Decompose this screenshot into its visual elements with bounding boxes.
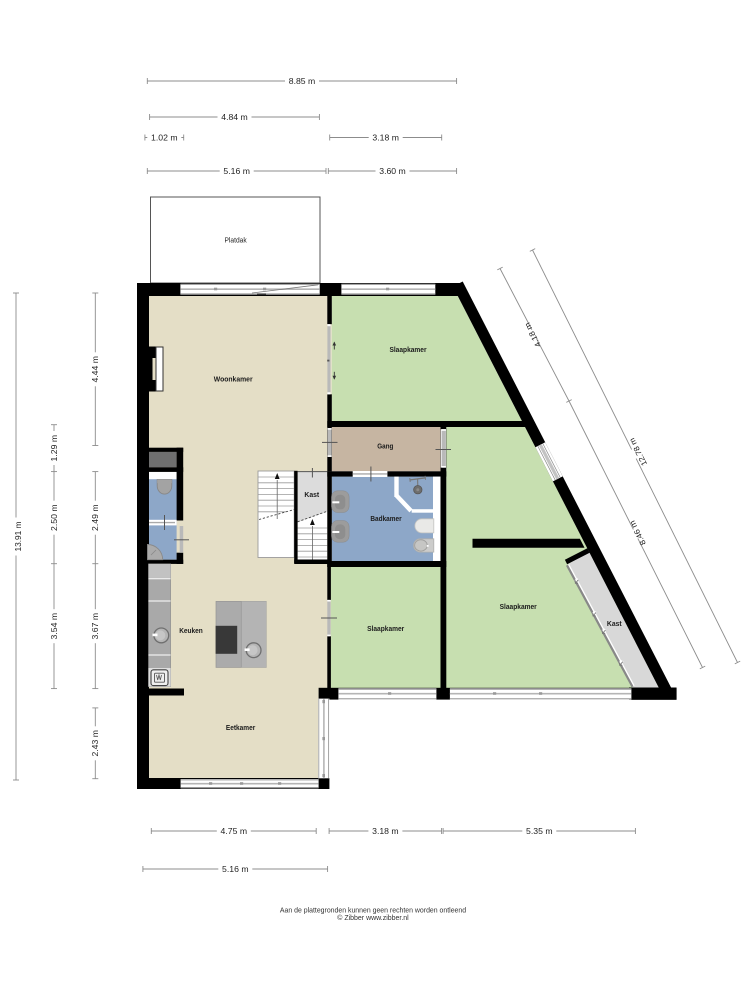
svg-text:Slaapkamer: Slaapkamer [500,602,537,611]
svg-text:4.44 m: 4.44 m [91,356,100,383]
svg-text:Woonkamer: Woonkamer [214,374,253,383]
svg-text:Platdak: Platdak [225,235,248,244]
svg-text:2.50 m: 2.50 m [50,504,59,531]
svg-text:Badkamer: Badkamer [370,514,401,523]
svg-text:3.18 m: 3.18 m [372,827,399,836]
svg-text:1.29 m: 1.29 m [50,435,59,462]
svg-text:13.91 m: 13.91 m [14,522,23,552]
svg-text:5.16 m: 5.16 m [223,167,250,176]
svg-text:Slaapkamer: Slaapkamer [367,624,404,633]
svg-text:3.60 m: 3.60 m [379,167,406,176]
svg-text:5.16 m: 5.16 m [222,865,249,874]
svg-text:Eetkamer: Eetkamer [226,723,256,732]
svg-text:2.49 m: 2.49 m [91,504,100,531]
svg-text:4.84 m: 4.84 m [221,113,248,122]
svg-text:Kast: Kast [304,490,319,499]
svg-text:Keuken: Keuken [179,626,203,635]
svg-text:3.54 m: 3.54 m [50,613,59,640]
svg-text:4.75 m: 4.75 m [221,827,248,836]
svg-text:© Zibber www.zibber.nl: © Zibber www.zibber.nl [337,913,409,922]
svg-text:3.18 m: 3.18 m [372,133,399,142]
svg-text:8.85 m: 8.85 m [289,77,316,86]
svg-text:Slaapkamer: Slaapkamer [389,345,426,354]
svg-text:2.43 m: 2.43 m [91,730,100,757]
svg-text:Gang: Gang [377,442,393,451]
svg-text:3.67 m: 3.67 m [91,613,100,640]
svg-text:5.35 m: 5.35 m [526,827,553,836]
svg-text:Kast: Kast [607,619,622,628]
svg-text:1.02 m: 1.02 m [151,133,178,142]
